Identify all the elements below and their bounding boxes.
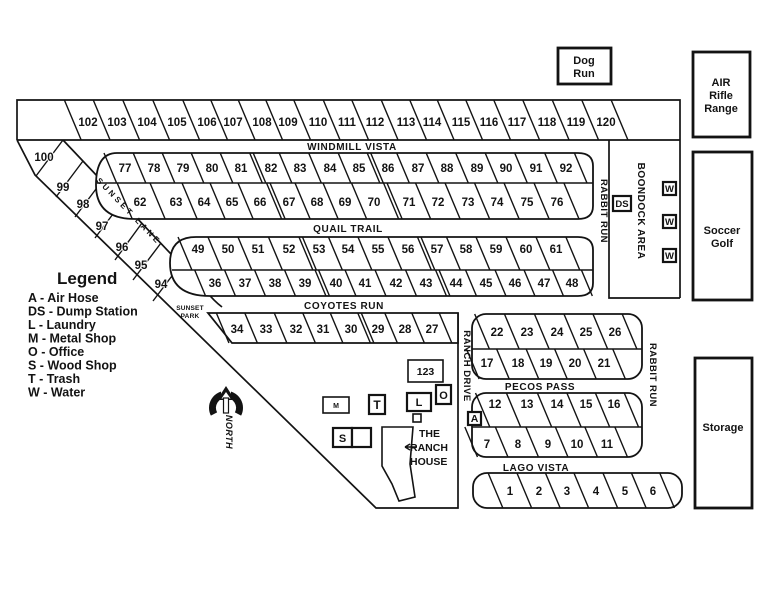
site-number: 48 (566, 278, 579, 290)
sunset-park-label-line1: SUNSET (176, 305, 204, 312)
legend-item-office: O - Office (28, 345, 84, 359)
site-number: 53 (313, 244, 326, 256)
site-number: 115 (452, 117, 471, 129)
site-number: 31 (317, 324, 330, 336)
trash-marker: T (373, 398, 381, 412)
site-number: 13 (521, 399, 534, 411)
map-svg: 1021031041051061071081091101111121131141… (0, 0, 768, 593)
site-number: 65 (226, 197, 239, 209)
air-rifle-label-line2: Rifle (709, 90, 733, 102)
site-number: 34 (231, 324, 244, 336)
site-number: 117 (508, 117, 527, 129)
site-number: 94 (155, 279, 168, 291)
site-number: 25 (580, 327, 593, 339)
soccer-golf-label-line1: Soccer (704, 225, 741, 237)
site-number: 79 (177, 163, 190, 175)
legend-item-laundry: L - Laundry (28, 318, 96, 332)
site-number: 57 (431, 244, 444, 256)
site-number: 49 (192, 244, 205, 256)
site-number: 18 (512, 358, 525, 370)
site-number: 108 (252, 117, 272, 129)
site-number: 60 (520, 244, 533, 256)
site-number: 116 (480, 117, 499, 129)
site-number: 7 (484, 439, 490, 451)
site-number: 85 (353, 163, 366, 175)
block-pecos (472, 314, 642, 379)
ranch-house-label-line1: THE (419, 428, 440, 440)
site-number: 47 (538, 278, 551, 290)
site-number: 30 (345, 324, 358, 336)
site-number: 86 (382, 163, 395, 175)
site-number: 74 (491, 197, 504, 209)
site-number: 119 (567, 117, 586, 129)
site-number: 73 (462, 197, 475, 209)
site-number: 41 (359, 278, 372, 290)
site-number: 109 (278, 117, 297, 129)
street-pecos-pass: PECOS PASS (505, 382, 575, 393)
legend-item-water: W - Water (28, 386, 85, 400)
site-number: 103 (107, 117, 126, 129)
site-number: 88 (441, 163, 454, 175)
site-number: 29 (372, 324, 385, 336)
site-number: 10 (571, 439, 584, 451)
site-number: 17 (481, 358, 494, 370)
storage-label: Storage (703, 422, 744, 434)
site-number: 120 (596, 117, 615, 129)
site-number: 100 (34, 152, 53, 164)
site-number: 46 (509, 278, 522, 290)
site-number: 106 (197, 117, 216, 129)
site-number: 114 (423, 117, 442, 129)
site-number: 95 (135, 260, 148, 272)
site-number: 22 (491, 327, 504, 339)
site-number: 36 (209, 278, 222, 290)
air-hose-marker: A (471, 413, 479, 425)
site-number: 9 (545, 439, 551, 451)
site-number: 63 (170, 197, 183, 209)
air-rifle-label-line3: Range (704, 103, 738, 115)
site-number: 55 (372, 244, 385, 256)
site-number: 112 (366, 117, 385, 129)
site-number: 56 (402, 244, 415, 256)
site-number: 42 (390, 278, 403, 290)
unit-123-label: 123 (417, 366, 435, 378)
legend-item-air-hose: A - Air Hose (28, 291, 99, 305)
site-number: 39 (299, 278, 312, 290)
site-number: 68 (311, 197, 324, 209)
street-rabbit-run-lower: RABBIT RUN (647, 343, 658, 407)
ranch-house-label-line3: HOUSE (410, 456, 447, 468)
street-rabbit-run-upper: RABBIT RUN (598, 179, 609, 243)
dump-station-marker: DS (615, 199, 628, 210)
site-number: 84 (324, 163, 337, 175)
dog-run-label-line1: Dog (573, 55, 594, 67)
water-marker-1: W (665, 184, 674, 195)
site-number: 87 (412, 163, 425, 175)
site-number: 24 (551, 327, 564, 339)
site-number: 58 (460, 244, 473, 256)
street-coyotes-run: COYOTES RUN (304, 301, 384, 312)
wood-shop-marker: S (339, 433, 346, 445)
site-number: 82 (265, 163, 278, 175)
site-number: 81 (235, 163, 248, 175)
water-marker-3: W (665, 251, 674, 262)
site-number: 16 (608, 399, 621, 411)
wood-shop-annex-box (352, 428, 371, 447)
street-ranch-drive: RANCH DRIVE (461, 330, 472, 401)
site-number: 91 (530, 163, 543, 175)
laundry-marker: L (416, 397, 423, 409)
site-number: 83 (294, 163, 307, 175)
site-number: 104 (137, 117, 157, 129)
street-lago-vista: LAGO VISTA (503, 463, 569, 474)
legend-title: Legend (57, 269, 117, 288)
soccer-golf-label-line2: Golf (711, 238, 733, 250)
site-number: 69 (339, 197, 352, 209)
site-number: 78 (148, 163, 161, 175)
site-number: 12 (489, 399, 502, 411)
site-number: 38 (269, 278, 282, 290)
site-number: 1 (507, 486, 514, 498)
site-number: 15 (580, 399, 593, 411)
boondock-area-label: BOONDOCK AREA (635, 163, 646, 260)
site-number: 76 (551, 197, 564, 209)
site-number: 54 (342, 244, 355, 256)
north-arrow-label: NORTH (224, 415, 234, 449)
legend-item-dump-station: DS - Dump Station (28, 305, 138, 319)
site-number: 70 (368, 197, 381, 209)
site-number: 66 (254, 197, 267, 209)
site-number: 45 (480, 278, 493, 290)
legend-item-wood-shop: S - Wood Shop (28, 359, 117, 373)
site-number: 72 (432, 197, 445, 209)
site-number: 27 (426, 324, 439, 336)
site-number: 102 (78, 117, 97, 129)
site-number: 110 (309, 117, 328, 129)
site-number: 105 (167, 117, 187, 129)
site-number: 97 (96, 221, 109, 233)
site-number: 71 (403, 197, 416, 209)
site-number: 20 (569, 358, 582, 370)
water-marker-2: W (665, 217, 674, 228)
site-number: 67 (283, 197, 296, 209)
site-number: 5 (622, 486, 629, 498)
sunset-park-label-line2: PARK (181, 313, 200, 320)
site-number: 6 (650, 486, 656, 498)
metal-shop-marker: M (333, 403, 339, 410)
site-number: 92 (560, 163, 573, 175)
site-number: 52 (283, 244, 296, 256)
site-number: 59 (490, 244, 503, 256)
north-arrow-icon (213, 386, 240, 414)
small-outbuilding (413, 414, 421, 422)
site-number: 4 (593, 486, 600, 498)
legend-item-trash: T - Trash (28, 372, 80, 386)
dog-run-label-line2: Run (573, 68, 595, 80)
site-number: 61 (550, 244, 563, 256)
site-number: 62 (134, 197, 147, 209)
site-number: 113 (397, 117, 416, 129)
site-number: 118 (538, 117, 557, 129)
site-number: 89 (471, 163, 484, 175)
site-number: 33 (260, 324, 273, 336)
site-number: 3 (564, 486, 570, 498)
site-number: 40 (330, 278, 343, 290)
site-number: 32 (290, 324, 303, 336)
site-number: 111 (338, 117, 357, 129)
street-windmill-vista: WINDMILL VISTA (307, 142, 397, 153)
site-number: 80 (206, 163, 219, 175)
site-number: 98 (77, 199, 90, 211)
legend-item-metal-shop: M - Metal Shop (28, 332, 117, 346)
site-number: 90 (500, 163, 513, 175)
site-number: 26 (609, 327, 622, 339)
site-number: 107 (223, 117, 242, 129)
site-number: 64 (198, 197, 211, 209)
site-number: 8 (515, 439, 522, 451)
site-number: 43 (420, 278, 433, 290)
office-marker: O (439, 390, 448, 402)
air-rifle-label-line1: AIR (712, 77, 731, 89)
site-number: 14 (551, 399, 564, 411)
site-number: 2 (536, 486, 542, 498)
site-number: 11 (601, 439, 614, 451)
legend: Legend A - Air Hose DS - Dump Station L … (28, 269, 138, 400)
site-number: 77 (119, 163, 132, 175)
street-quail-trail: QUAIL TRAIL (313, 224, 383, 235)
site-number: 75 (521, 197, 534, 209)
park-map: 1021031041051061071081091101111121131141… (0, 0, 768, 593)
site-number: 37 (239, 278, 252, 290)
site-number: 23 (521, 327, 534, 339)
site-number: 99 (57, 182, 70, 194)
site-number: 51 (252, 244, 265, 256)
ranch-house-label-line2: RANCH (410, 442, 448, 454)
site-number: 21 (598, 358, 611, 370)
site-number: 50 (222, 244, 235, 256)
site-number: 19 (540, 358, 553, 370)
site-number: 44 (450, 278, 463, 290)
strip-coyotes (208, 313, 458, 343)
site-number: 28 (399, 324, 412, 336)
site-number: 96 (116, 242, 129, 254)
